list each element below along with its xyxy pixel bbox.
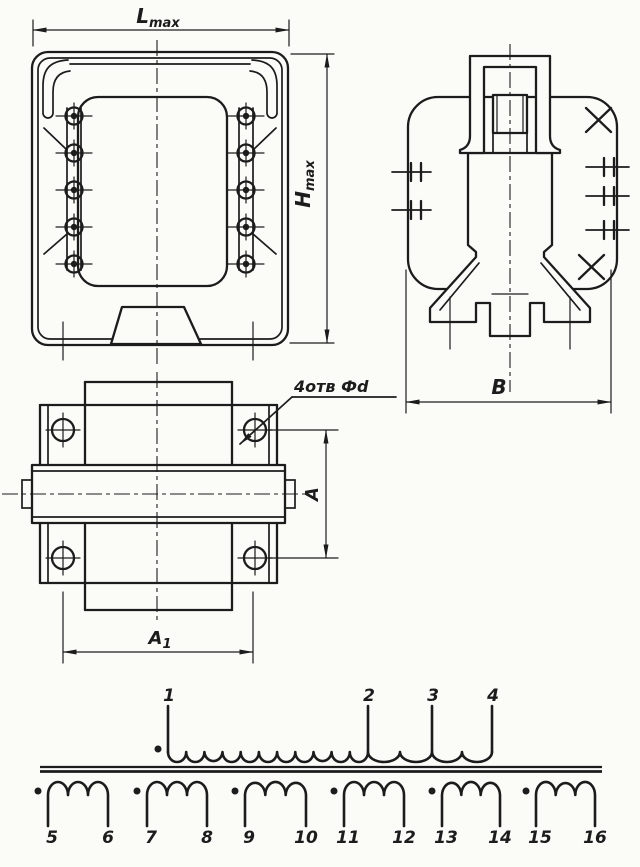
polarity-dot bbox=[331, 788, 338, 795]
rolled-edge-right bbox=[250, 60, 277, 118]
mounting-hole bbox=[46, 413, 80, 447]
pin-strips bbox=[67, 108, 253, 270]
secondary-winding: 1314 bbox=[429, 782, 512, 848]
edge-lug bbox=[586, 221, 629, 239]
secondary-terminal-label: 16 bbox=[583, 828, 607, 848]
a-label: A bbox=[302, 487, 323, 503]
edge-lug bbox=[392, 201, 431, 219]
pin-center-dot bbox=[243, 224, 249, 230]
core-tab bbox=[111, 307, 201, 344]
secondary-coil bbox=[48, 782, 108, 826]
terminal-pin bbox=[228, 214, 264, 240]
primary-terminal-label: 3 bbox=[427, 686, 439, 706]
flange-top bbox=[40, 405, 277, 465]
secondary-terminal-label: 9 bbox=[243, 828, 255, 848]
edge-lug bbox=[586, 158, 629, 176]
b-label: B bbox=[491, 375, 506, 399]
secondary-terminal-label: 6 bbox=[102, 828, 114, 848]
secondary-winding: 56 bbox=[35, 782, 115, 848]
secondary-coil bbox=[536, 782, 595, 826]
side-view: B bbox=[392, 44, 629, 413]
pin-center-dot bbox=[243, 187, 249, 193]
primary-terminal-label: 4 bbox=[486, 686, 499, 706]
terminal-pin bbox=[56, 214, 92, 240]
secondary-coil bbox=[344, 782, 404, 826]
mounting-hole bbox=[46, 541, 80, 575]
dimension-h-max: Hmax bbox=[290, 54, 334, 343]
pin-center-dot bbox=[71, 150, 77, 156]
secondary-coil bbox=[147, 782, 207, 826]
rolled-edge-left bbox=[43, 60, 70, 118]
secondary-terminal-label: 10 bbox=[294, 828, 318, 848]
polarity-dot bbox=[35, 788, 42, 795]
pin-center-dot bbox=[243, 150, 249, 156]
secondary-winding: 1112 bbox=[331, 782, 416, 848]
secondary-terminal-label: 15 bbox=[528, 828, 552, 848]
polarity-dot bbox=[155, 746, 162, 753]
pin-center-dot bbox=[71, 261, 77, 267]
terminal-pin bbox=[228, 251, 264, 277]
secondary-terminal-label: 5 bbox=[46, 828, 58, 848]
pin-center-dot bbox=[71, 187, 77, 193]
primary-coil bbox=[168, 752, 492, 762]
terminal-pin bbox=[56, 251, 92, 277]
dimension-a1: A1 bbox=[63, 592, 253, 663]
a1-label: A1 bbox=[147, 628, 172, 652]
polarity-dot bbox=[429, 788, 436, 795]
secondary-windings: 5678910111213141516 bbox=[35, 782, 607, 848]
terminal-pins bbox=[56, 103, 264, 277]
edge-lug bbox=[586, 187, 629, 205]
secondary-winding: 1516 bbox=[523, 782, 607, 848]
polarity-dot bbox=[523, 788, 530, 795]
secondary-terminal-label: 8 bbox=[201, 828, 213, 848]
dimension-a: A bbox=[268, 430, 338, 558]
secondary-coil bbox=[442, 782, 500, 826]
holes-callout: 4отв Фd bbox=[240, 377, 396, 444]
terminal-pin bbox=[56, 103, 92, 129]
secondary-terminal-label: 13 bbox=[434, 828, 458, 848]
pin-center-dot bbox=[243, 113, 249, 119]
secondary-terminal-label: 14 bbox=[488, 828, 512, 848]
polarity-dot bbox=[134, 788, 141, 795]
terminal-pin bbox=[228, 177, 264, 203]
secondary-terminal-label: 11 bbox=[336, 828, 360, 848]
lamination-bottom bbox=[85, 523, 232, 610]
transformer-drawing: Lmax Hmax bbox=[0, 0, 640, 867]
pin-center-dot bbox=[71, 113, 77, 119]
front-view: Lmax Hmax bbox=[32, 4, 334, 364]
flange-bottom bbox=[40, 523, 277, 583]
primary-terminal-label: 2 bbox=[363, 686, 375, 706]
l-max-label: Lmax bbox=[136, 4, 180, 31]
edge-lug bbox=[392, 163, 431, 181]
holes-note-label: 4отв Фd bbox=[293, 377, 369, 396]
terminal-pin bbox=[228, 103, 264, 129]
primary-winding: 1234 bbox=[155, 686, 499, 762]
secondary-terminal-label: 12 bbox=[392, 828, 416, 848]
dimension-l-max: Lmax bbox=[33, 4, 289, 46]
terminal-pin bbox=[56, 177, 92, 203]
h-max-label: Hmax bbox=[291, 160, 318, 208]
secondary-winding: 78 bbox=[134, 782, 214, 848]
primary-terminal-label: 1 bbox=[163, 686, 175, 706]
lamination-top bbox=[85, 382, 232, 465]
top-view: A A1 4отв Фd bbox=[2, 372, 396, 663]
secondary-terminal-label: 7 bbox=[145, 828, 157, 848]
secondary-winding: 910 bbox=[232, 782, 318, 848]
bobbin-outline bbox=[78, 97, 227, 286]
secondary-coil bbox=[245, 782, 306, 826]
pin-center-dot bbox=[71, 224, 77, 230]
angled-lugs bbox=[579, 108, 611, 279]
polarity-dot bbox=[232, 788, 239, 795]
pin-center-dot bbox=[243, 261, 249, 267]
winding-schematic: 1234 5678910111213141516 bbox=[35, 686, 607, 848]
mounting-hole bbox=[238, 541, 272, 575]
